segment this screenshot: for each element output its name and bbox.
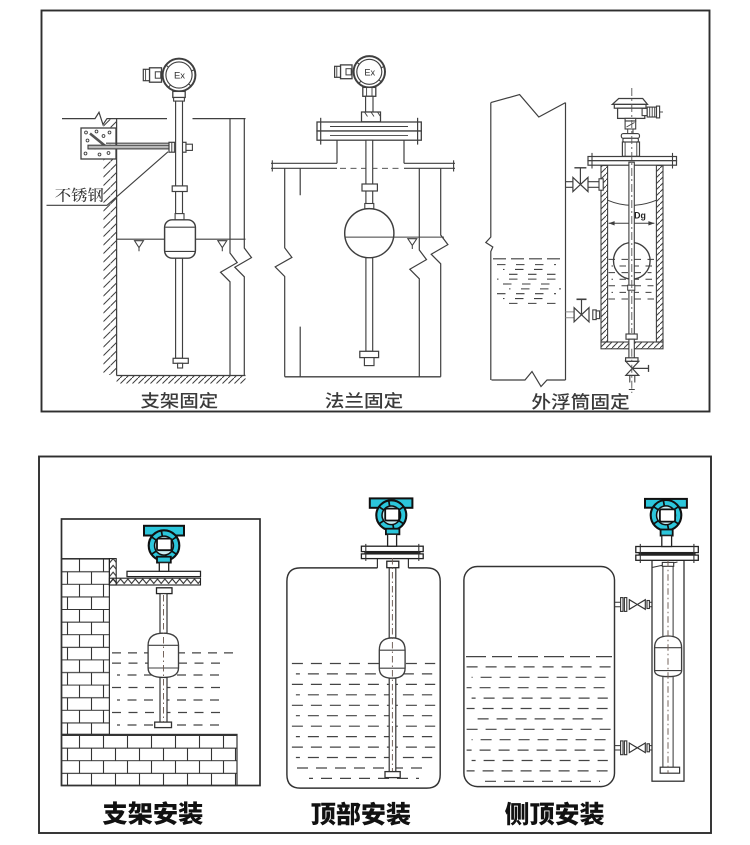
svg-text:Ex: Ex: [364, 67, 375, 77]
svg-text:Dg: Dg: [634, 211, 646, 221]
svg-text:Ex: Ex: [174, 71, 185, 82]
